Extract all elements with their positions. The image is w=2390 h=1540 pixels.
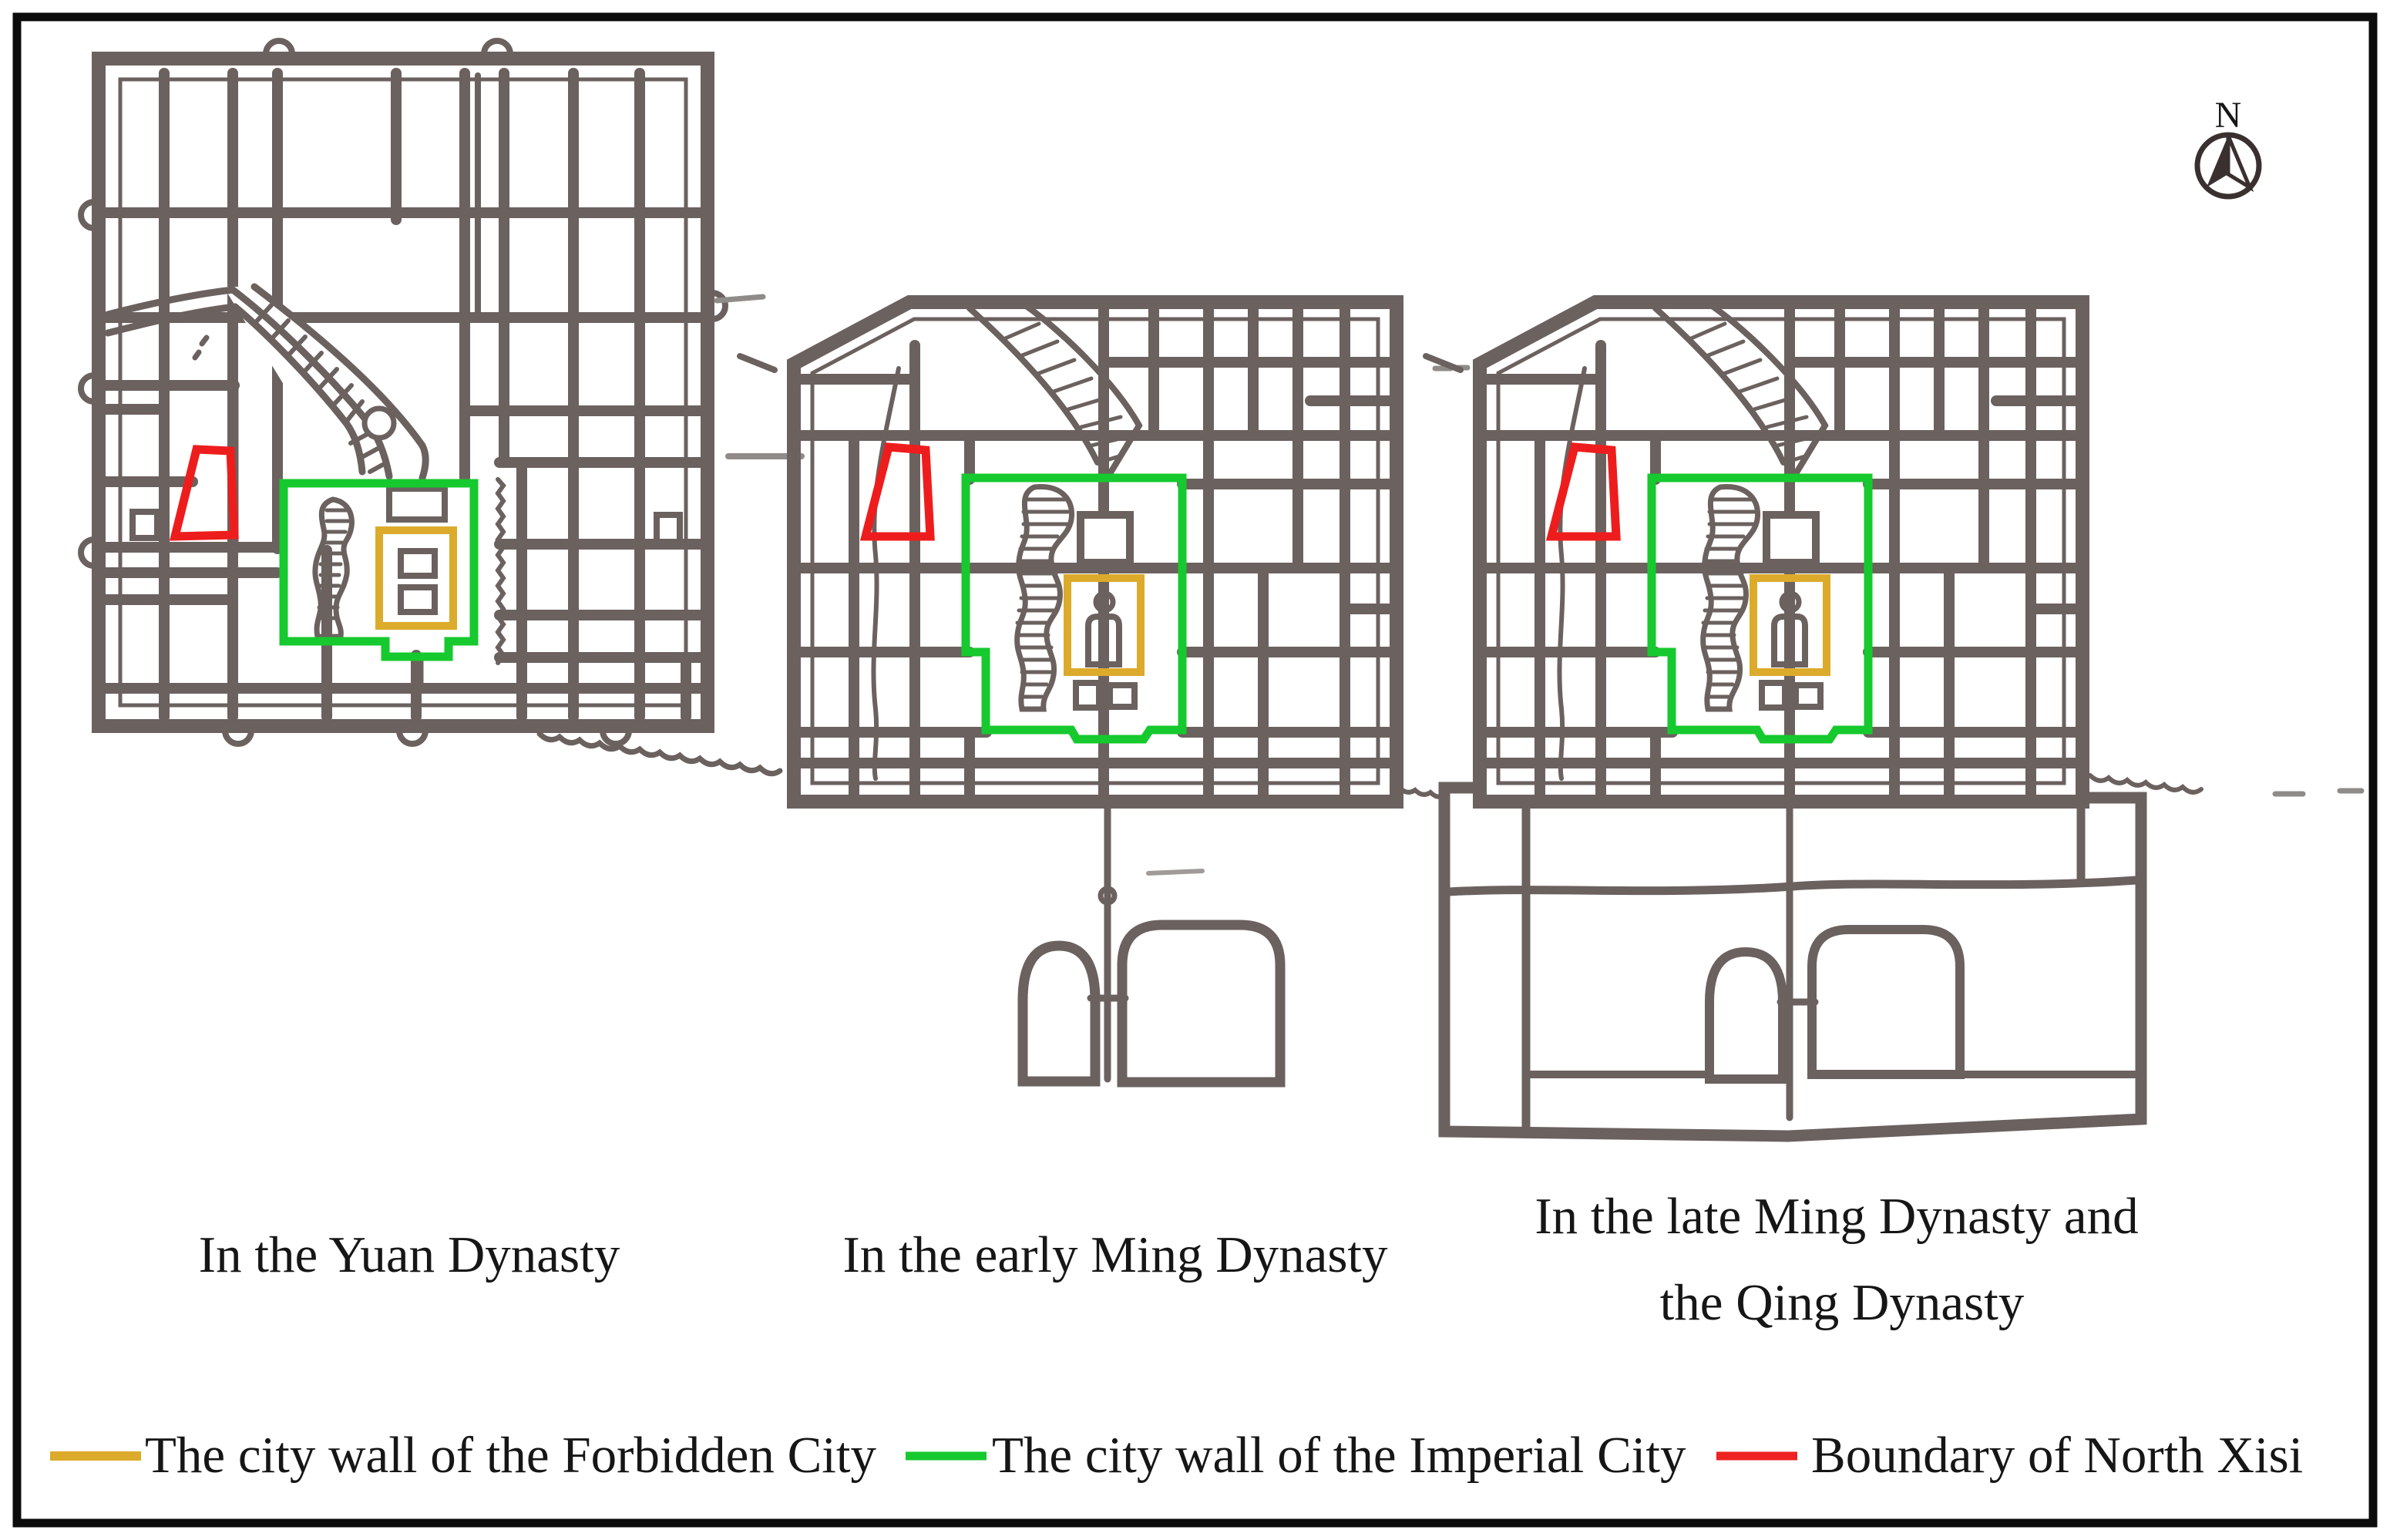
svg-text:Boundary of North Xisi: Boundary of North Xisi (1811, 1427, 2303, 1484)
svg-text:N: N (2215, 95, 2242, 136)
svg-text:The city wall of the Forbidden: The city wall of the Forbidden City (145, 1427, 876, 1484)
svg-text:The city wall of the Imperial: The city wall of the Imperial City (992, 1427, 1686, 1484)
svg-text:In the early Ming Dynasty: In the early Ming Dynasty (842, 1226, 1388, 1283)
svg-text:the Qing Dynasty: the Qing Dynasty (1660, 1274, 2025, 1331)
svg-text:In the Yuan Dynasty: In the Yuan Dynasty (199, 1226, 620, 1283)
svg-text:In the late Ming Dynasty and: In the late Ming Dynasty and (1535, 1188, 2138, 1245)
